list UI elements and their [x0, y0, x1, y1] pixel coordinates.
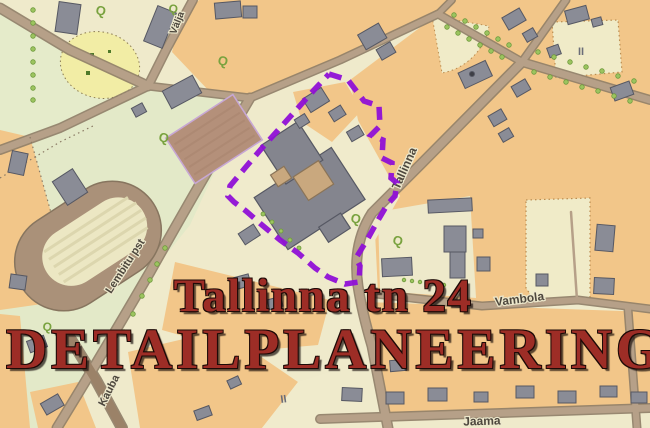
map-screenshot: Q Q Q Q Q Q Q II II Välja Lembitu pst Ka…: [0, 0, 650, 428]
title-address: Tallinna tn 24: [0, 269, 648, 323]
street-label-jaama: Jaama: [463, 413, 501, 428]
storeys-symbol: II: [578, 46, 584, 58]
title-detailplan: DETAILPLANEERING: [6, 317, 650, 382]
